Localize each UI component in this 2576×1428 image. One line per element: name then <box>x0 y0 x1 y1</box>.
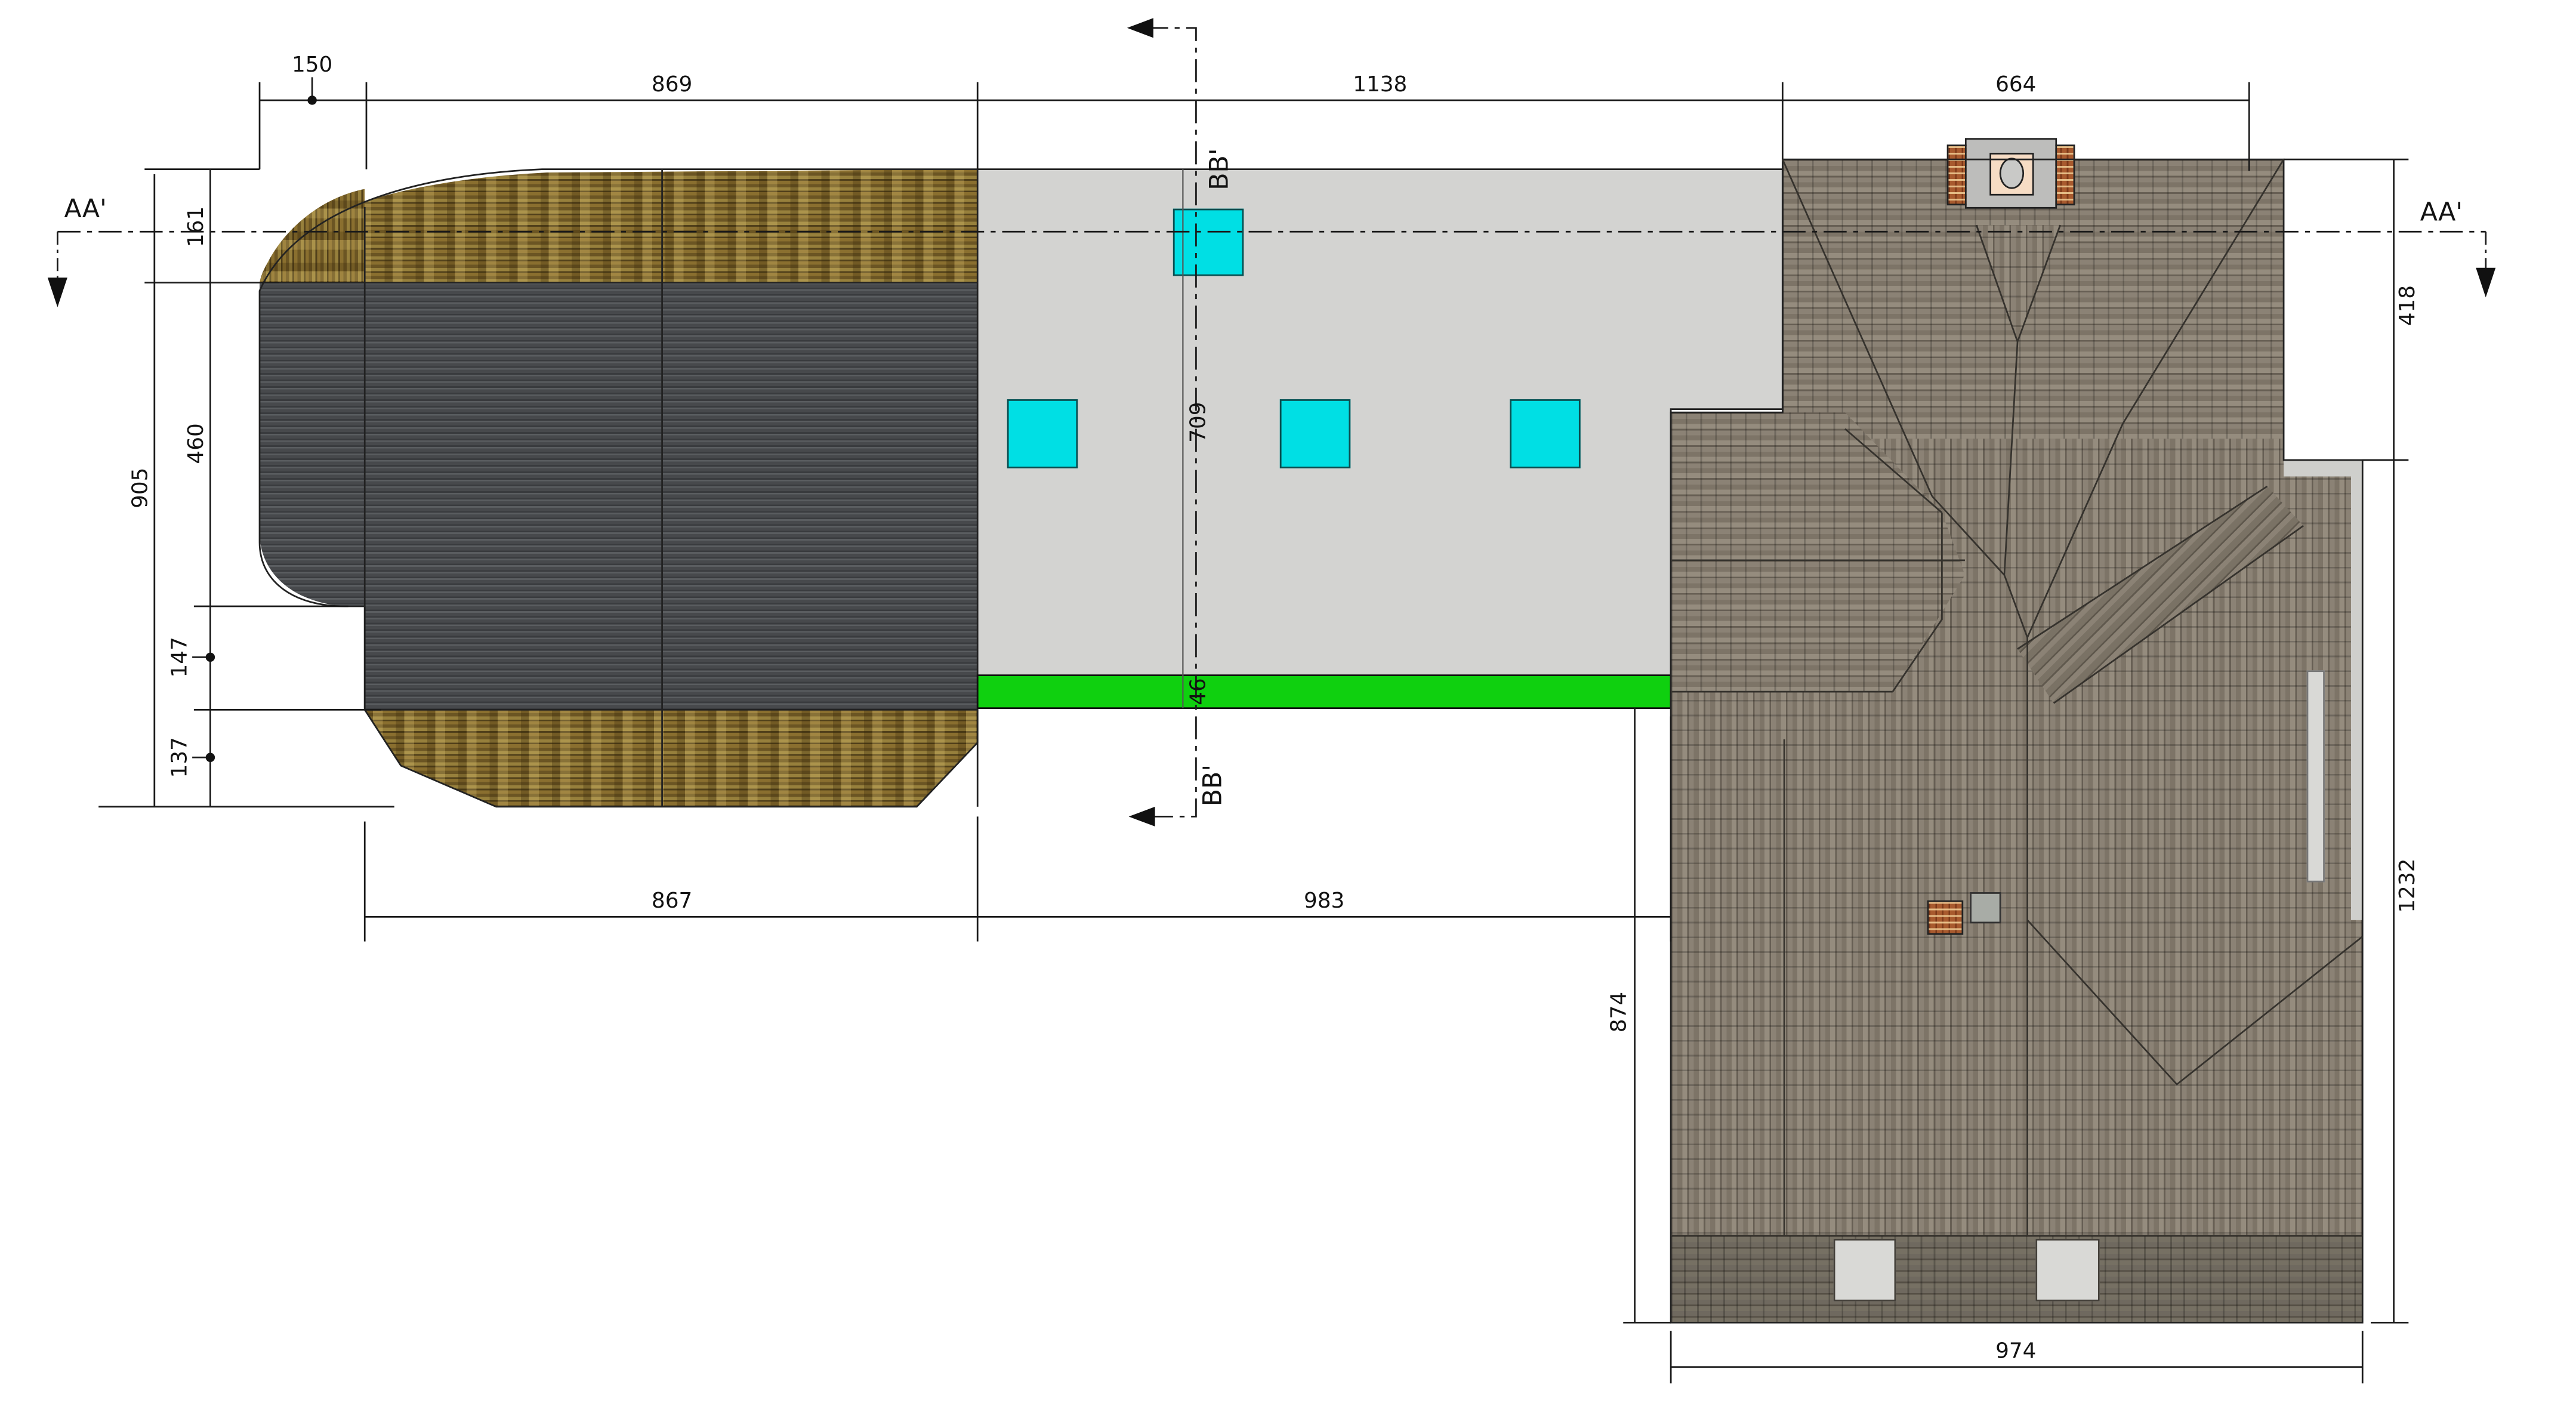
dim-label-150: 150 <box>292 55 332 76</box>
drawing-viewport: 150 869 1138 664 161 460 147 137 905 418… <box>0 0 2576 1428</box>
flat-roof-outline <box>977 169 1782 708</box>
dim-label-460: 460 <box>186 423 208 464</box>
dim-label-1232: 1232 <box>2398 858 2419 912</box>
dim-label-1138: 1138 <box>1353 75 1407 96</box>
dim-label-418: 418 <box>2398 285 2419 326</box>
right-roof-ridge-lines <box>1671 159 2362 1235</box>
dim-label-874: 874 <box>1609 992 1631 1032</box>
dim-label-664: 664 <box>1995 75 2036 96</box>
dim-label-905: 905 <box>131 468 152 508</box>
dim-label-983: 983 <box>1304 892 1344 913</box>
dim-label-974: 974 <box>1995 1341 2036 1363</box>
dimension-dots <box>206 95 317 762</box>
dimension-lines <box>98 77 2408 1383</box>
section-label-bb-bottom: BB' <box>1201 764 1227 806</box>
aa-right-arrow-icon <box>2476 268 2495 298</box>
left-building-outline <box>260 169 977 807</box>
dim-label-709: 709 <box>1189 402 1210 442</box>
section-label-aa-right: AA' <box>2420 201 2463 227</box>
section-arrows <box>48 18 2495 826</box>
bb-top-arrow-icon <box>1127 18 1153 38</box>
bb-bottom-arrow-icon <box>1129 807 1155 826</box>
dim-label-869: 869 <box>652 75 692 96</box>
section-line-aa <box>57 232 2485 289</box>
dim-label-867: 867 <box>652 892 692 913</box>
linework-overlay <box>0 0 2576 1428</box>
roof-plan-stage: 150 869 1138 664 161 460 147 137 905 418… <box>0 0 2576 1428</box>
dim-label-46: 46 <box>1189 678 1210 705</box>
right-building-outline <box>1671 159 2362 1322</box>
dim-label-161: 161 <box>186 206 208 247</box>
section-label-bb-top: BB' <box>1208 148 1233 190</box>
dim-label-147: 147 <box>170 637 192 677</box>
dim-label-137: 137 <box>170 737 192 778</box>
section-label-aa-left: AA' <box>64 198 107 223</box>
aa-left-arrow-icon <box>48 277 67 307</box>
